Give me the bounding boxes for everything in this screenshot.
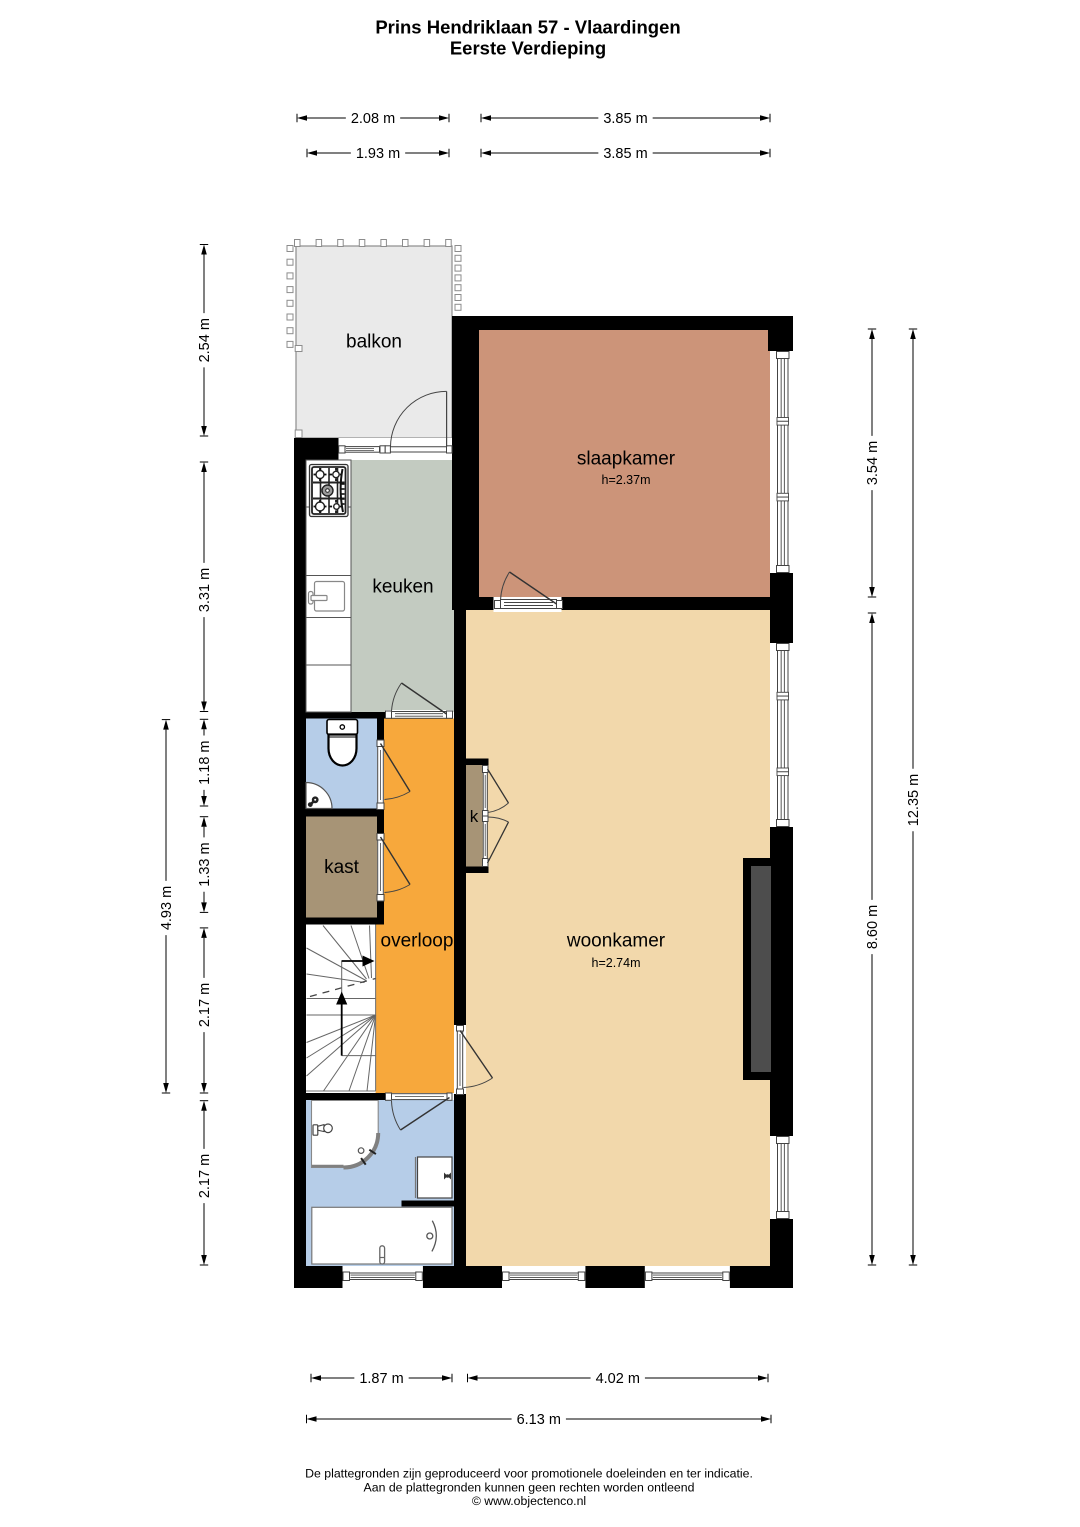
svg-text:overloop: overloop	[381, 931, 454, 952]
svg-text:3.54 m: 3.54 m	[865, 441, 881, 485]
svg-text:2.08 m: 2.08 m	[351, 111, 395, 127]
svg-text:h=2.74m: h=2.74m	[592, 956, 641, 970]
svg-text:6.13 m: 6.13 m	[517, 1412, 561, 1428]
svg-text:3.85 m: 3.85 m	[603, 111, 647, 127]
svg-text:kast: kast	[324, 857, 360, 878]
svg-text:Eerste Verdieping: Eerste Verdieping	[450, 38, 606, 59]
svg-text:Prins Hendriklaan 57 - Vlaardi: Prins Hendriklaan 57 - Vlaardingen	[375, 17, 680, 38]
svg-text:3.85 m: 3.85 m	[603, 146, 647, 162]
svg-text:4.02 m: 4.02 m	[596, 1371, 640, 1387]
svg-text:1.33 m: 1.33 m	[197, 842, 213, 886]
svg-text:1.18 m: 1.18 m	[197, 740, 213, 784]
svg-text:2.54 m: 2.54 m	[197, 318, 213, 362]
svg-text:keuken: keuken	[372, 577, 433, 598]
svg-text:12.35 m: 12.35 m	[906, 774, 922, 826]
svg-text:8.60 m: 8.60 m	[865, 905, 881, 949]
svg-text:4.93 m: 4.93 m	[159, 886, 175, 930]
svg-text:h=2.37m: h=2.37m	[602, 473, 651, 487]
svg-text:3.31 m: 3.31 m	[197, 568, 213, 612]
svg-text:balkon: balkon	[346, 332, 402, 353]
svg-text:k: k	[470, 807, 479, 826]
svg-text:2.17 m: 2.17 m	[197, 1154, 213, 1198]
svg-text:1.93 m: 1.93 m	[356, 146, 400, 162]
svg-text:Aan de plattegronden kunnen ge: Aan de plattegronden kunnen geen rechten…	[364, 1481, 695, 1495]
svg-text:woonkamer: woonkamer	[566, 931, 666, 952]
svg-text:slaapkamer: slaapkamer	[577, 449, 676, 470]
svg-text:2.17 m: 2.17 m	[197, 983, 213, 1027]
svg-text:© www.objectenco.nl: © www.objectenco.nl	[472, 1494, 586, 1508]
svg-text:1.87 m: 1.87 m	[359, 1371, 403, 1387]
svg-text:De plattegronden zijn geproduc: De plattegronden zijn geproduceerd voor …	[305, 1467, 753, 1481]
